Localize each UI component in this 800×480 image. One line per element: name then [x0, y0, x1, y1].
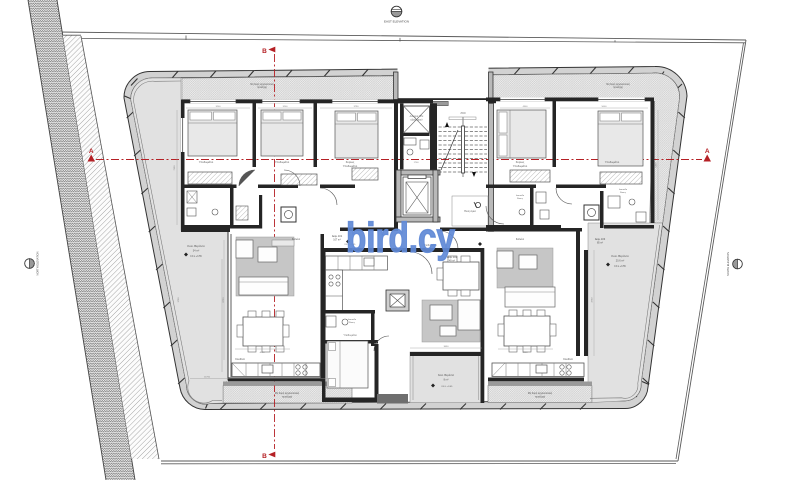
svg-text:85 m²: 85 m² — [597, 242, 603, 245]
svg-text:EAST ELEVATION: EAST ELEVATION — [384, 19, 409, 23]
svg-text:Κυρίως: Κυρίως — [346, 160, 355, 164]
svg-text:προεξοχή: προεξοχή — [282, 396, 293, 399]
svg-text:Σαλόνι: Σαλόνι — [516, 237, 525, 241]
svg-text:A: A — [705, 148, 710, 155]
svg-text:ΚουΖίνα: ΚουΖίνα — [563, 357, 573, 361]
svg-text:προεξοχή: προεξοχή — [535, 396, 546, 399]
svg-text:Κυρίως: Κυρίως — [516, 160, 525, 164]
svg-text:Υποδωμάτιο: Υποδωμάτιο — [199, 160, 214, 164]
svg-text:107 m²: 107 m² — [333, 239, 341, 242]
svg-text:B: B — [262, 48, 267, 55]
svg-text:3200: 3200 — [216, 106, 222, 108]
svg-text:4000: 4000 — [523, 352, 529, 354]
svg-text:προεξοχή: προεξοχή — [613, 86, 624, 89]
svg-text:8 m²: 8 m² — [444, 379, 449, 382]
svg-text:Ντους: Ντους — [349, 322, 355, 324]
svg-text:3200: 3200 — [283, 106, 289, 108]
svg-text:Ντους: Ντους — [620, 192, 626, 194]
svg-text:NORTH ELEVATION: NORTH ELEVATION — [36, 251, 40, 275]
svg-text:Κοιλ. Βεράντα: Κοιλ. Βεράντα — [611, 254, 629, 258]
svg-text:3650: 3650 — [444, 346, 450, 348]
svg-text:F.F.L.+3.55: F.F.L.+3.55 — [614, 266, 626, 268]
svg-text:5000: 5000 — [602, 106, 608, 108]
svg-text:SOUTH ELEVATION: SOUTH ELEVATION — [726, 252, 730, 276]
svg-text:προεξοχή: προεξοχή — [257, 86, 268, 89]
svg-text:Ντους: Ντους — [517, 198, 523, 200]
svg-text:Διαμ.101: Διαμ.101 — [332, 234, 343, 238]
svg-text:B: B — [262, 453, 267, 460]
svg-text:Υποδωμάτιο: Υποδωμάτιο — [343, 334, 357, 337]
svg-text:Υποδωμάτιο: Υποδωμάτιο — [343, 164, 358, 168]
svg-text:Διαμ.103: Διαμ.103 — [595, 237, 606, 241]
svg-text:Κοιλ. Βεράντα: Κοιλ. Βεράντα — [438, 373, 455, 377]
svg-text:Σαλόνι: Σαλόνι — [292, 237, 301, 241]
svg-text:ΚουΖίνα: ΚουΖίνα — [235, 357, 245, 361]
svg-text:Μη δομή αρχιτεκτονική: Μη δομή αρχιτεκτονική — [250, 83, 274, 86]
svg-text:F.F.L.+3.05: F.F.L.+3.05 — [442, 386, 454, 388]
svg-text:2500: 2500 — [460, 112, 466, 115]
svg-text:3790: 3790 — [354, 106, 360, 108]
svg-text:5400: 5400 — [656, 162, 658, 168]
svg-text:F.F.L.+3.55: F.F.L.+3.55 — [190, 256, 202, 258]
svg-text:4750: 4750 — [592, 297, 594, 303]
svg-text:εξαερισμοϋ: εξαερισμοϋ — [411, 119, 424, 122]
svg-text:34 m²: 34 m² — [193, 250, 200, 253]
svg-text:1700: 1700 — [414, 162, 420, 164]
svg-text:Κοιλ. Βεράντα: Κοιλ. Βεράντα — [187, 244, 205, 248]
svg-text:Μη δομή αρχιτεκτονική: Μη δομή αρχιτεκτονική — [606, 83, 630, 86]
svg-text:1700: 1700 — [178, 297, 180, 303]
svg-text:Υποδωμάτιο: Υποδωμάτιο — [513, 164, 528, 168]
svg-text:Υποδωμάτιο: Υποδωμάτιο — [605, 160, 620, 164]
svg-text:4000: 4000 — [260, 352, 266, 354]
svg-text:bird.cy: bird.cy — [346, 214, 456, 261]
svg-text:4300: 4300 — [523, 106, 529, 108]
svg-text:20.6 m²: 20.6 m² — [616, 260, 625, 263]
svg-text:7100: 7100 — [174, 165, 176, 171]
svg-text:Ισοπεδο: Ισοπεδο — [516, 195, 525, 197]
svg-text:Ισοπεδο: Ισοπεδο — [348, 319, 357, 321]
svg-text:Ισοπεδο: Ισοπεδο — [619, 189, 628, 191]
svg-text:Θεση Αμεα: Θεση Αμεα — [464, 210, 476, 213]
svg-text:A: A — [89, 148, 94, 155]
svg-text:Υποδωμάτιο: Υποδωμάτιο — [275, 160, 290, 164]
svg-text:11750: 11750 — [204, 377, 211, 379]
